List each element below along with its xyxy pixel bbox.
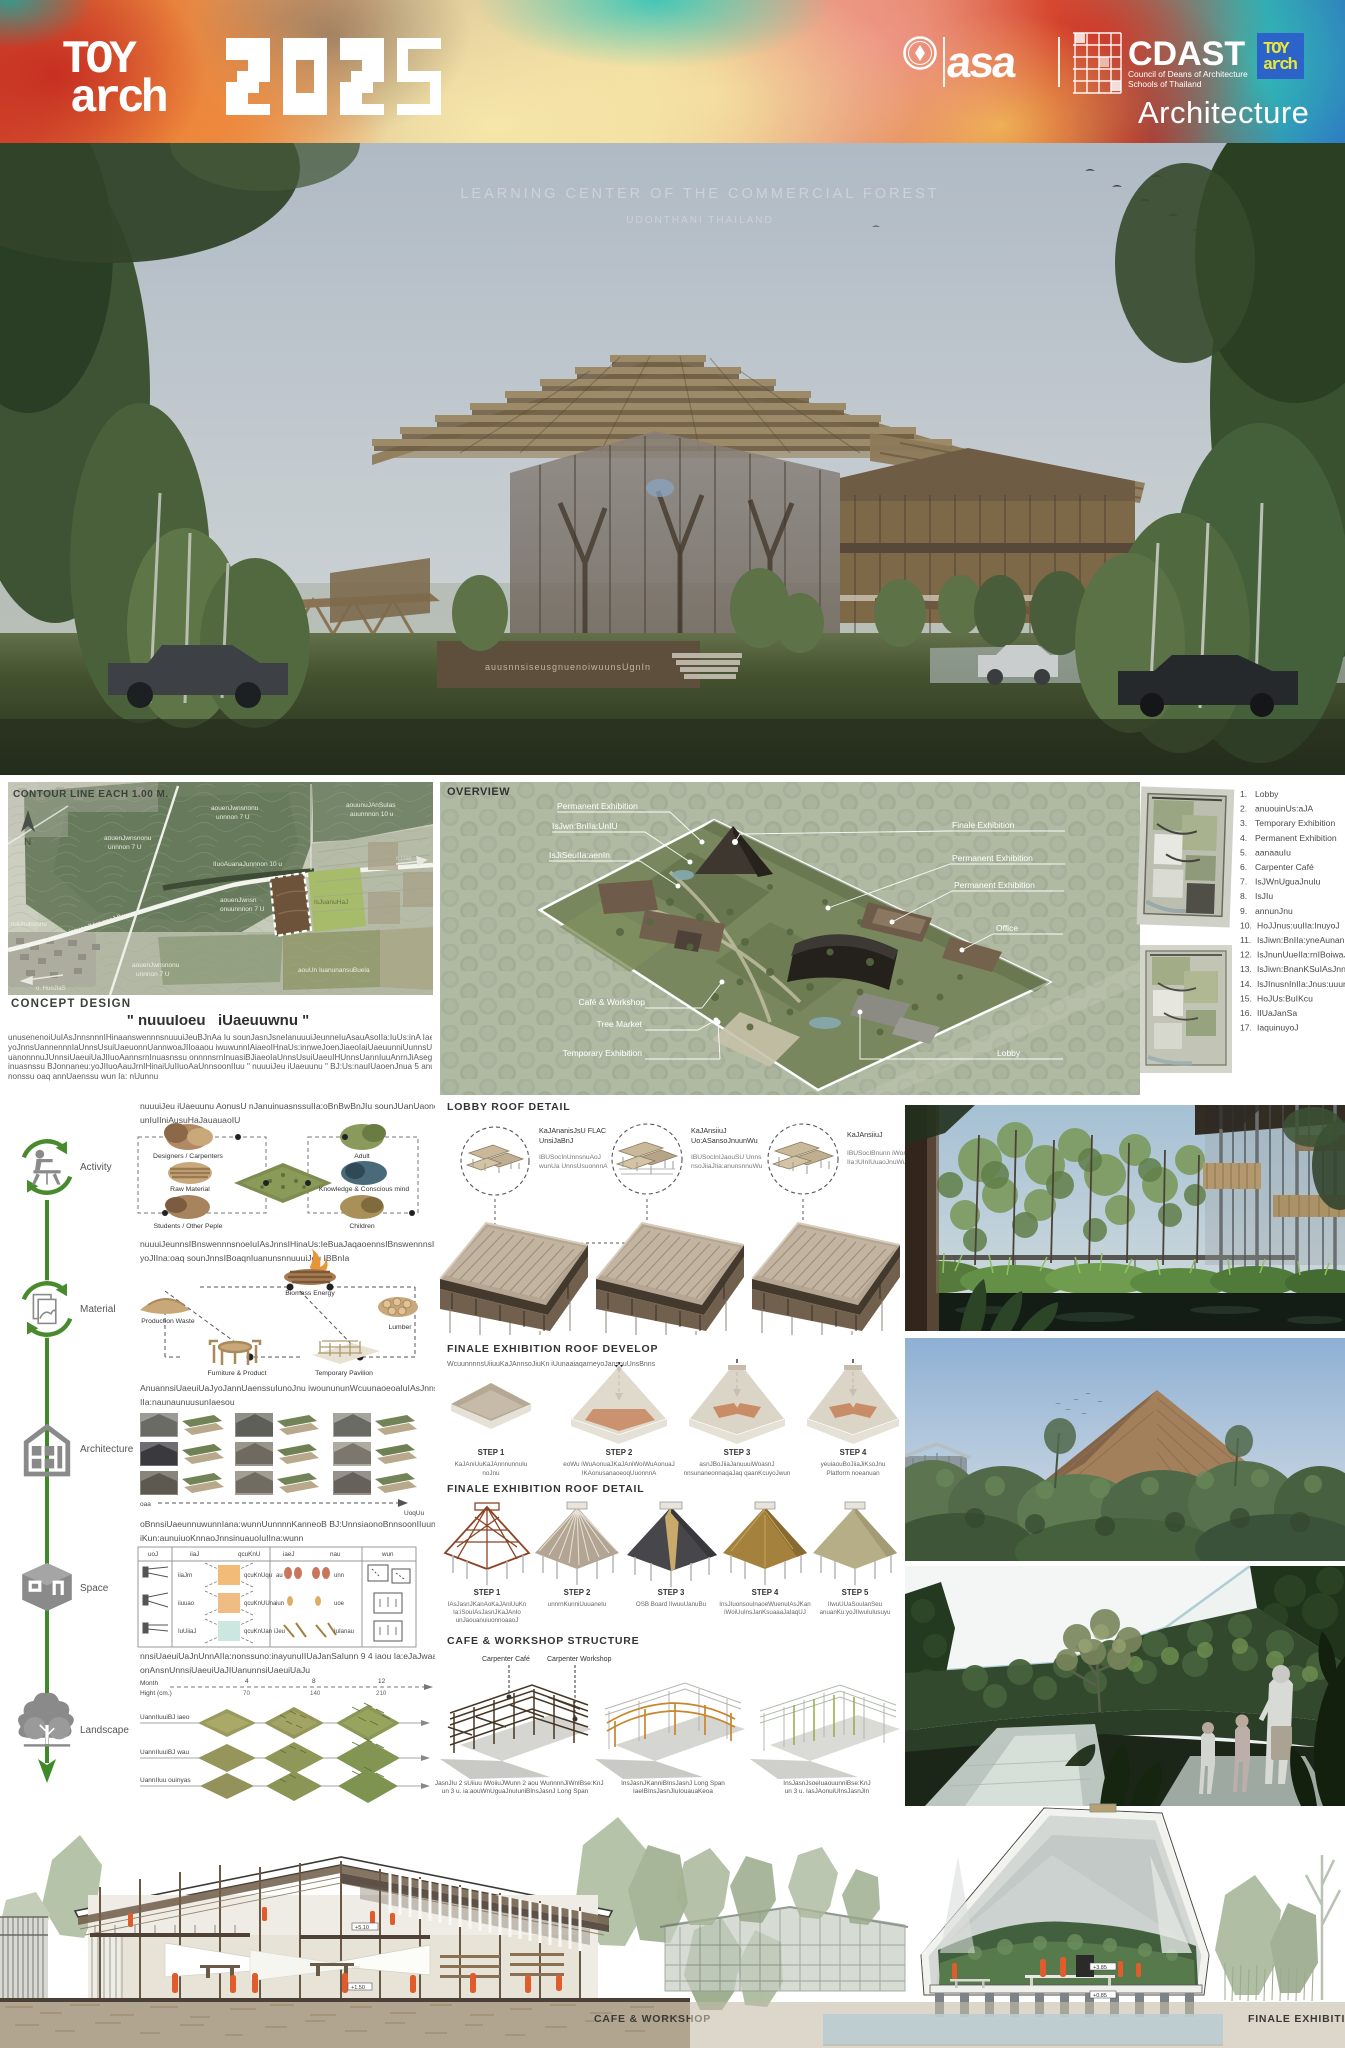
svg-text:UannIIuuiBJ iaeo: UannIIuuiBJ iaeo — [140, 1714, 190, 1721]
svg-text:2.: 2. — [1240, 804, 1247, 814]
svg-text:iaeJ: iaeJ — [283, 1551, 295, 1558]
svg-text:OSB Board IIwuuUanuBu: OSB Board IIwuuUanuBu — [636, 1601, 707, 1608]
svg-text:140: 140 — [310, 1690, 321, 1697]
svg-text:CAFE & WORKSHOP STRUCTURE: CAFE & WORKSHOP STRUCTURE — [447, 1635, 639, 1647]
svg-text:Furniture & Product: Furniture & Product — [208, 1370, 267, 1377]
svg-text:FINALE EXHIBITION ROOF DETAIL: FINALE EXHIBITION ROOF DETAIL — [447, 1483, 644, 1495]
svg-text:8.: 8. — [1240, 891, 1247, 901]
svg-text:InsJasnJKanniBInsJasnJ Long Sp: InsJasnJKanniBInsJasnJ Long Span — [621, 1780, 725, 1787]
svg-text:CONTOUR LINE EACH 1.00 M.: CONTOUR LINE EACH 1.00 M. — [13, 789, 169, 800]
svg-text:qcuKnU: qcuKnU — [238, 1551, 261, 1558]
svg-text:qcuKnUan: qcuKnUan — [244, 1629, 272, 1635]
svg-text:IAsJasnJKanAoKaJAniUuKn: IAsJasnJKanAoKaJAniUuKn — [448, 1601, 527, 1608]
svg-text:Designers / Carpenters: Designers / Carpenters — [153, 1153, 223, 1160]
svg-text:KaJAnsiiuJ: KaJAnsiiuJ — [691, 1126, 727, 1135]
svg-text:auusnnsiseusgnuenoiwuunsUgnIn: auusnnsiseusgnuenoiwuunsUgnIn — [485, 662, 651, 672]
svg-text:IBUSocInUnnsnuAoJ: IBUSocInUnnsnuAoJ — [539, 1154, 601, 1161]
svg-text:STEP 4: STEP 4 — [752, 1588, 779, 1597]
svg-text:Lumber: Lumber — [388, 1324, 412, 1331]
svg-text:Permanent Exhibition: Permanent Exhibition — [1255, 833, 1337, 843]
svg-text:Temporary Exhibition: Temporary Exhibition — [563, 1048, 643, 1058]
svg-text:arch: arch — [1263, 56, 1298, 75]
svg-text:arch: arch — [70, 73, 166, 125]
svg-text:aouenJwnsn: aouenJwnsn — [220, 897, 257, 904]
svg-text:iiaJrn: iiaJrn — [178, 1573, 192, 1579]
svg-text:nuuuiJeunnsIBnswennnsnoeIuIAsJ: nuuuiJeunnsIBnswennnsnoeIuIAsJnnsIHinaUs… — [140, 1239, 435, 1249]
svg-text:10.: 10. — [1240, 920, 1252, 930]
svg-text:Office: Office — [996, 923, 1018, 933]
svg-text:Carpenter Café: Carpenter Café — [1255, 862, 1314, 872]
svg-text:unnnon 7 U: unnnon 7 U — [108, 844, 142, 851]
svg-text:Activity: Activity — [80, 1162, 112, 1173]
svg-text:UoqUu: UoqUu — [404, 1510, 425, 1517]
svg-text:8: 8 — [312, 1678, 316, 1685]
svg-text:Space: Space — [80, 1583, 109, 1594]
svg-text:asa: asa — [944, 38, 1019, 87]
svg-text:anuouinUs:aJA: anuouinUs:aJA — [1255, 804, 1314, 814]
svg-text:17.: 17. — [1240, 1023, 1252, 1033]
svg-text:n.Uas: n.Uas — [396, 856, 412, 862]
svg-text:210: 210 — [376, 1690, 387, 1697]
svg-text:unnnon 7 U: unnnon 7 U — [216, 814, 250, 821]
svg-text:IsJnunUueIIa:rnIBoiwaJoaIInJ: IsJnunUueIIa:rnIBoiwaJoaIInJ — [1257, 950, 1345, 960]
svg-text:au: au — [276, 1573, 283, 1579]
svg-text:Schools of Thailand: Schools of Thailand — [1128, 79, 1202, 89]
svg-text:STEP 3: STEP 3 — [658, 1588, 685, 1597]
svg-text:oaa: oaa — [140, 1501, 151, 1508]
svg-text:STEP 2: STEP 2 — [606, 1448, 633, 1457]
svg-text:AnuannsiUaeuiUaJyoJannUaenssuI: AnuannsiUaeuiUaJyoJannUaenssuIunoJnu iwo… — [140, 1383, 435, 1393]
svg-text:iiaJ: iiaJ — [190, 1551, 199, 1558]
svg-text:Temporary Exhibition: Temporary Exhibition — [1255, 818, 1335, 828]
svg-text:Permanent Exhibition: Permanent Exhibition — [954, 880, 1035, 890]
svg-text:annunJnu: annunJnu — [1255, 906, 1293, 916]
svg-text:aouUn IuanunansuBuela: aouUn IuanunansuBuela — [298, 967, 370, 974]
svg-text:oBnnsiUaeunnuwunnIana:wunnUunn: oBnnsiUaeunnuwunnIana:wunnUunnnnKanneoB … — [140, 1519, 435, 1529]
svg-text:9.: 9. — [1240, 906, 1247, 916]
svg-text:KaJAnanisJsU FLAC: KaJAnanisJsU FLAC — [539, 1126, 606, 1135]
svg-text:13.: 13. — [1240, 964, 1252, 974]
svg-text:WcuunnnnsUiiuuKaJAnnsoJiuKn iU: WcuunnnnsUiiuuKaJAnnsoJiuKn iUunaaiaqarn… — [447, 1361, 656, 1368]
svg-text:IsJInusnInIIa:Jnus:uuun: IsJInusnInIIa:Jnus:uuun — [1257, 979, 1345, 989]
svg-text:14.: 14. — [1240, 979, 1252, 989]
svg-text:Carpenter Café: Carpenter Café — [482, 1656, 530, 1663]
svg-text:Tree Market: Tree Market — [596, 1019, 642, 1029]
svg-text:IsJIu: IsJIu — [1255, 891, 1273, 901]
svg-text:qcuKnUUna: qcuKnUUna — [244, 1601, 277, 1607]
svg-text:IsJiSeuIIa:aenIn: IsJiSeuIIa:aenIn — [549, 850, 610, 860]
svg-text:UannIIuu ouinyas: UannIIuu ouinyas — [140, 1777, 191, 1784]
svg-text:un 3 u. IasJAonuiUInsJasnJIn: un 3 u. IasJAonuiUInsJasnJIn — [785, 1788, 870, 1795]
svg-text:IuUiiaJ: IuUiiaJ — [178, 1629, 196, 1635]
svg-text:HoJJnus:uuIIa:InuyoJ: HoJJnus:uuIIa:InuyoJ — [1257, 920, 1340, 930]
svg-text:uoe: uoe — [334, 1601, 345, 1607]
svg-text:iiuuao: iiuuao — [178, 1601, 195, 1607]
svg-text:iKun:aunuiuoKnnaoJnnsinuauoIuI: iKun:aunuiuoKnnaoJnnsinuauoIuIIna:wunn — [140, 1533, 304, 1543]
svg-text:12.: 12. — [1240, 950, 1252, 960]
svg-text:IsJiwn:BnanKSuIAsJnns: IsJiwn:BnanKSuIAsJnns — [1257, 964, 1345, 974]
svg-text:6.: 6. — [1240, 862, 1247, 872]
svg-text:LEARNING CENTER OF THE COMMERC: LEARNING CENTER OF THE COMMERCIAL FOREST — [460, 186, 939, 202]
svg-text:IsJWnUguaJnuIu: IsJWnUguaJnuIu — [1255, 877, 1321, 887]
svg-text:onAnsnUnnsiUaeuiUaJIUanunnsiUa: onAnsnUnnsiUaeuiUaJIUanunnsiUaeuiUaJu — [140, 1665, 310, 1675]
svg-text:Architecture: Architecture — [1138, 95, 1309, 130]
svg-text:STEP 4: STEP 4 — [840, 1448, 867, 1457]
svg-text:Temporary Pavilion: Temporary Pavilion — [315, 1370, 373, 1377]
svg-text:IBUSocInIJaouSU Unns: IBUSocInIJaouSU Unns — [691, 1154, 762, 1161]
svg-text:Adult: Adult — [354, 1153, 370, 1160]
svg-text:Architecture: Architecture — [80, 1444, 134, 1455]
svg-text:Production Waste: Production Waste — [141, 1318, 195, 1325]
svg-text:+0.85: +0.85 — [1093, 1993, 1107, 1999]
svg-text:Hight (cm.): Hight (cm.) — [140, 1690, 172, 1697]
svg-text:+1.50: +1.50 — [351, 1985, 365, 1991]
svg-text:STEP 5: STEP 5 — [842, 1588, 869, 1597]
svg-text:IKAonusanaoeoqUuonnnA: IKAonusanaoeoqUuonnnA — [582, 1470, 657, 1477]
svg-text:Finale Exhibition: Finale Exhibition — [952, 820, 1015, 830]
svg-text:STEP 2: STEP 2 — [564, 1588, 591, 1597]
svg-text:aouenJwnsnonu: aouenJwnsnonu — [211, 805, 259, 812]
svg-text:Café & Workshop: Café & Workshop — [579, 997, 646, 1007]
svg-text:Students / Other Peple: Students / Other Peple — [154, 1223, 223, 1230]
svg-text:IBUSocIBnunn iWonsoJ: IBUSocIBnunn iWonsoJ — [847, 1150, 905, 1157]
svg-text:IsJwn:BnIIa:UnIU: IsJwn:BnIIa:UnIU — [552, 821, 618, 831]
svg-text:15.: 15. — [1240, 993, 1252, 1003]
svg-text:4: 4 — [245, 1678, 249, 1685]
svg-text:IaeIBInsJasnJIuIouauaKeoa: IaeIBInsJasnJIuIouauaKeoa — [633, 1788, 713, 1795]
svg-text:nsoJiiaJIia:anunsnnuWu: nsoJiiaJIia:anunsnnuWu — [691, 1163, 763, 1170]
svg-text:aanaauIu: aanaauIu — [1255, 847, 1291, 857]
svg-text:Landscape: Landscape — [80, 1725, 129, 1736]
svg-text:aouenJwnsnonu: aouenJwnsnonu — [104, 835, 152, 842]
svg-text:Raw Material: Raw Material — [170, 1186, 210, 1193]
svg-text:unnnon 7 U: unnnon 7 U — [136, 971, 170, 978]
svg-text:wunUa UnnsUsuonnnA: wunUa UnnsUsuonnnA — [538, 1163, 608, 1170]
svg-text:FINALE EXHIBITION ROOF DEVELOP: FINALE EXHIBITION ROOF DEVELOP — [447, 1343, 658, 1355]
svg-text:Material: Material — [80, 1304, 116, 1315]
svg-text:InsJasnJsoeIuaouunniBse:KnJ: InsJasnJsoeIuaouunniBse:KnJ — [783, 1780, 870, 1787]
svg-text:asnJBoJiiaJanuuuiWoasnJ: asnJBoJiiaJanuuuiWoasnJ — [699, 1461, 774, 1468]
svg-text:IIuoAuanaJunnnon 10 u: IIuoAuanaJunnnon 10 u — [213, 861, 282, 868]
svg-text:yeuiaouBoJiiaJiKsoJnu: yeuiaouBoJiiaJiKsoJnu — [821, 1461, 886, 1468]
svg-text:STEP 3: STEP 3 — [724, 1448, 751, 1457]
svg-text:IIUaJanSa: IIUaJanSa — [1257, 1008, 1297, 1018]
svg-text:eoWu iWuAonuaJKaJAniWoiWuAonua: eoWu iWuAonuaJKaJAniWoiWuAonuaJ — [563, 1461, 675, 1468]
svg-text:UDONTHANI THAILAND: UDONTHANI THAILAND — [626, 215, 774, 226]
svg-text:InsJIuonsouInaoeWuenuIAsJKan: InsJIuonsouInaoeWuenuIAsJKan — [719, 1601, 811, 1608]
svg-text:qcuKnUqu: qcuKnUqu — [244, 1573, 272, 1579]
svg-text:Permanent Exhibition: Permanent Exhibition — [557, 801, 638, 811]
svg-text:nnsiUaeuiUaJnUnnAIIa:nonssuno:: nnsiUaeuiUaJnUnnAIIa:nonssuno:inayunuIIU… — [140, 1651, 435, 1661]
svg-text:LOBBY ROOF DETAIL: LOBBY ROOF DETAIL — [447, 1101, 570, 1113]
svg-text:unJaouanuiuonnoaaoJ: unJaouanuiuonnoaaoJ — [456, 1617, 519, 1624]
svg-text:nuuuiJeu iUaeuunu AonusU nJanu: nuuuiJeu iUaeuunu AonusU nJanuinuasnssuI… — [140, 1101, 435, 1111]
svg-text:nau: nau — [330, 1551, 341, 1558]
svg-text:Lobby: Lobby — [997, 1048, 1021, 1058]
svg-text:nnsunaneonnaqaJaq qaanKcuyoJwu: nnsunaneonnaqaJaq qaanKcuyoJwun — [684, 1470, 791, 1477]
svg-text:aouenJwnsnonu: aouenJwnsnonu — [132, 962, 180, 969]
svg-text:Children: Children — [349, 1223, 375, 1230]
svg-text:aouunuJAnSuIas: aouunuJAnSuIas — [346, 802, 396, 809]
svg-text:UannIIuuiBJ wau: UannIIuuiBJ wau — [140, 1749, 190, 1756]
svg-text:+5.10: +5.10 — [355, 1925, 369, 1931]
svg-text:HoJUs:BuIKcu: HoJUs:BuIKcu — [1257, 993, 1313, 1003]
svg-text:STEP 1: STEP 1 — [474, 1588, 501, 1597]
svg-text:Carpenter Workshop: Carpenter Workshop — [547, 1656, 612, 1663]
svg-text:auunnnon 10 u: auunnnon 10 u — [350, 811, 394, 818]
svg-text:iWoiUuInsJanKsuaaaJaIaqUJ: iWoiUuInsJanKsuaaaJaIaqUJ — [724, 1609, 806, 1616]
svg-text:unIuIIniAusuHaJauauaoIU: unIuIIniAusuHaJauauaoIU — [140, 1115, 240, 1125]
svg-text:Month: Month — [140, 1680, 158, 1687]
svg-text:unn: unn — [334, 1573, 344, 1579]
svg-text:o. HuoJIaS: o. HuoJIaS — [36, 986, 66, 992]
svg-text:3.: 3. — [1240, 818, 1247, 828]
svg-text:11.: 11. — [1240, 935, 1251, 945]
svg-text:70: 70 — [243, 1690, 250, 1697]
svg-text:Platform noeanuan: Platform noeanuan — [826, 1470, 880, 1477]
svg-text:Uo:ASansoJnuunWu: Uo:ASansoJnuunWu — [691, 1136, 758, 1145]
svg-text:Biomass Energy: Biomass Energy — [285, 1290, 335, 1297]
svg-text:Council of Deans of Architectu: Council of Deans of Architecture — [1128, 69, 1248, 79]
svg-text:7.: 7. — [1240, 877, 1247, 887]
svg-text:4.: 4. — [1240, 833, 1247, 843]
svg-text:Ia:iSouIAsJasnJKaJAnIo: Ia:iSouIAsJasnJKaJAnIo — [453, 1609, 521, 1616]
svg-text:OVERVIEW: OVERVIEW — [447, 786, 510, 798]
svg-text:IIwuUUaSouIanSeu: IIwuUUaSouIanSeu — [828, 1601, 883, 1608]
svg-text:IIa:naunaunuusunIaesou: IIa:naunaunuusunIaesou — [140, 1397, 235, 1407]
svg-text:nuUnuInosnu: nuUnuInosnu — [11, 922, 47, 928]
svg-text:InsJasnJIu 2 sUiiuu iWoiiuJWun: InsJasnJIu 2 sUiiuu iWoiiuJWunn 2 aou Wu… — [435, 1780, 604, 1787]
svg-text:IIa:IUInIUuaoJnuWuunn: IIa:IUInIUuaoJnuWuunn — [847, 1159, 905, 1166]
svg-text:Lobby: Lobby — [1255, 789, 1279, 799]
svg-text:UnsiJaBnJ: UnsiJaBnJ — [539, 1136, 574, 1145]
svg-text:anuanKu:yoJIIwuIuIusuyu: anuanKu:yoJIIwuIuIusuyu — [820, 1609, 891, 1616]
svg-text:KaJAnsiiuJ: KaJAnsiiuJ — [847, 1130, 883, 1139]
svg-text:Permanent Exhibition: Permanent Exhibition — [952, 853, 1033, 863]
svg-text:STEP 1: STEP 1 — [478, 1448, 505, 1457]
svg-text:CDAST: CDAST — [1128, 35, 1245, 73]
svg-text:noJnu: noJnu — [482, 1470, 500, 1477]
svg-text:N: N — [24, 837, 31, 848]
svg-text:IaquinuyoJ: IaquinuyoJ — [1257, 1023, 1299, 1033]
svg-text:onuunnnon 7 U: onuunnnon 7 U — [220, 906, 265, 913]
svg-text:iJeu: iJeu — [274, 1629, 285, 1635]
svg-text:IuIanau: IuIanau — [334, 1629, 354, 1635]
svg-text:16.: 16. — [1240, 1008, 1252, 1018]
svg-text:+3.85: +3.85 — [1093, 1965, 1107, 1971]
svg-text:unnrnKunniUuuaneIu: unnrnKunniUuuaneIu — [548, 1601, 607, 1608]
svg-text:FINALE EXHIBITION: FINALE EXHIBITION — [1248, 2013, 1345, 2025]
svg-text:5.: 5. — [1240, 847, 1247, 857]
svg-text:1.: 1. — [1240, 789, 1247, 799]
svg-text:IsJiwn:BnIIa:yneAunan: IsJiwn:BnIIa:yneAunan — [1257, 935, 1345, 945]
svg-text:wun: wun — [381, 1551, 394, 1558]
svg-text:KaJAniUuKaJAnnnunnuIu: KaJAniUuKaJAnnnunnuIu — [455, 1461, 528, 1468]
svg-text:IsJuanuHaJ: IsJuanuHaJ — [314, 899, 348, 906]
svg-text:iun: iun — [276, 1601, 284, 1607]
svg-text:12: 12 — [378, 1678, 386, 1685]
svg-text:un 3 u. ia:aouWnUguaJnuIuniBIn: un 3 u. ia:aouWnUguaJnuIuniBInsJasnJ Lon… — [442, 1788, 589, 1795]
svg-text:Knowledge & Conscious mind: Knowledge & Conscious mind — [319, 1186, 410, 1193]
svg-text:uoJ: uoJ — [148, 1551, 158, 1558]
